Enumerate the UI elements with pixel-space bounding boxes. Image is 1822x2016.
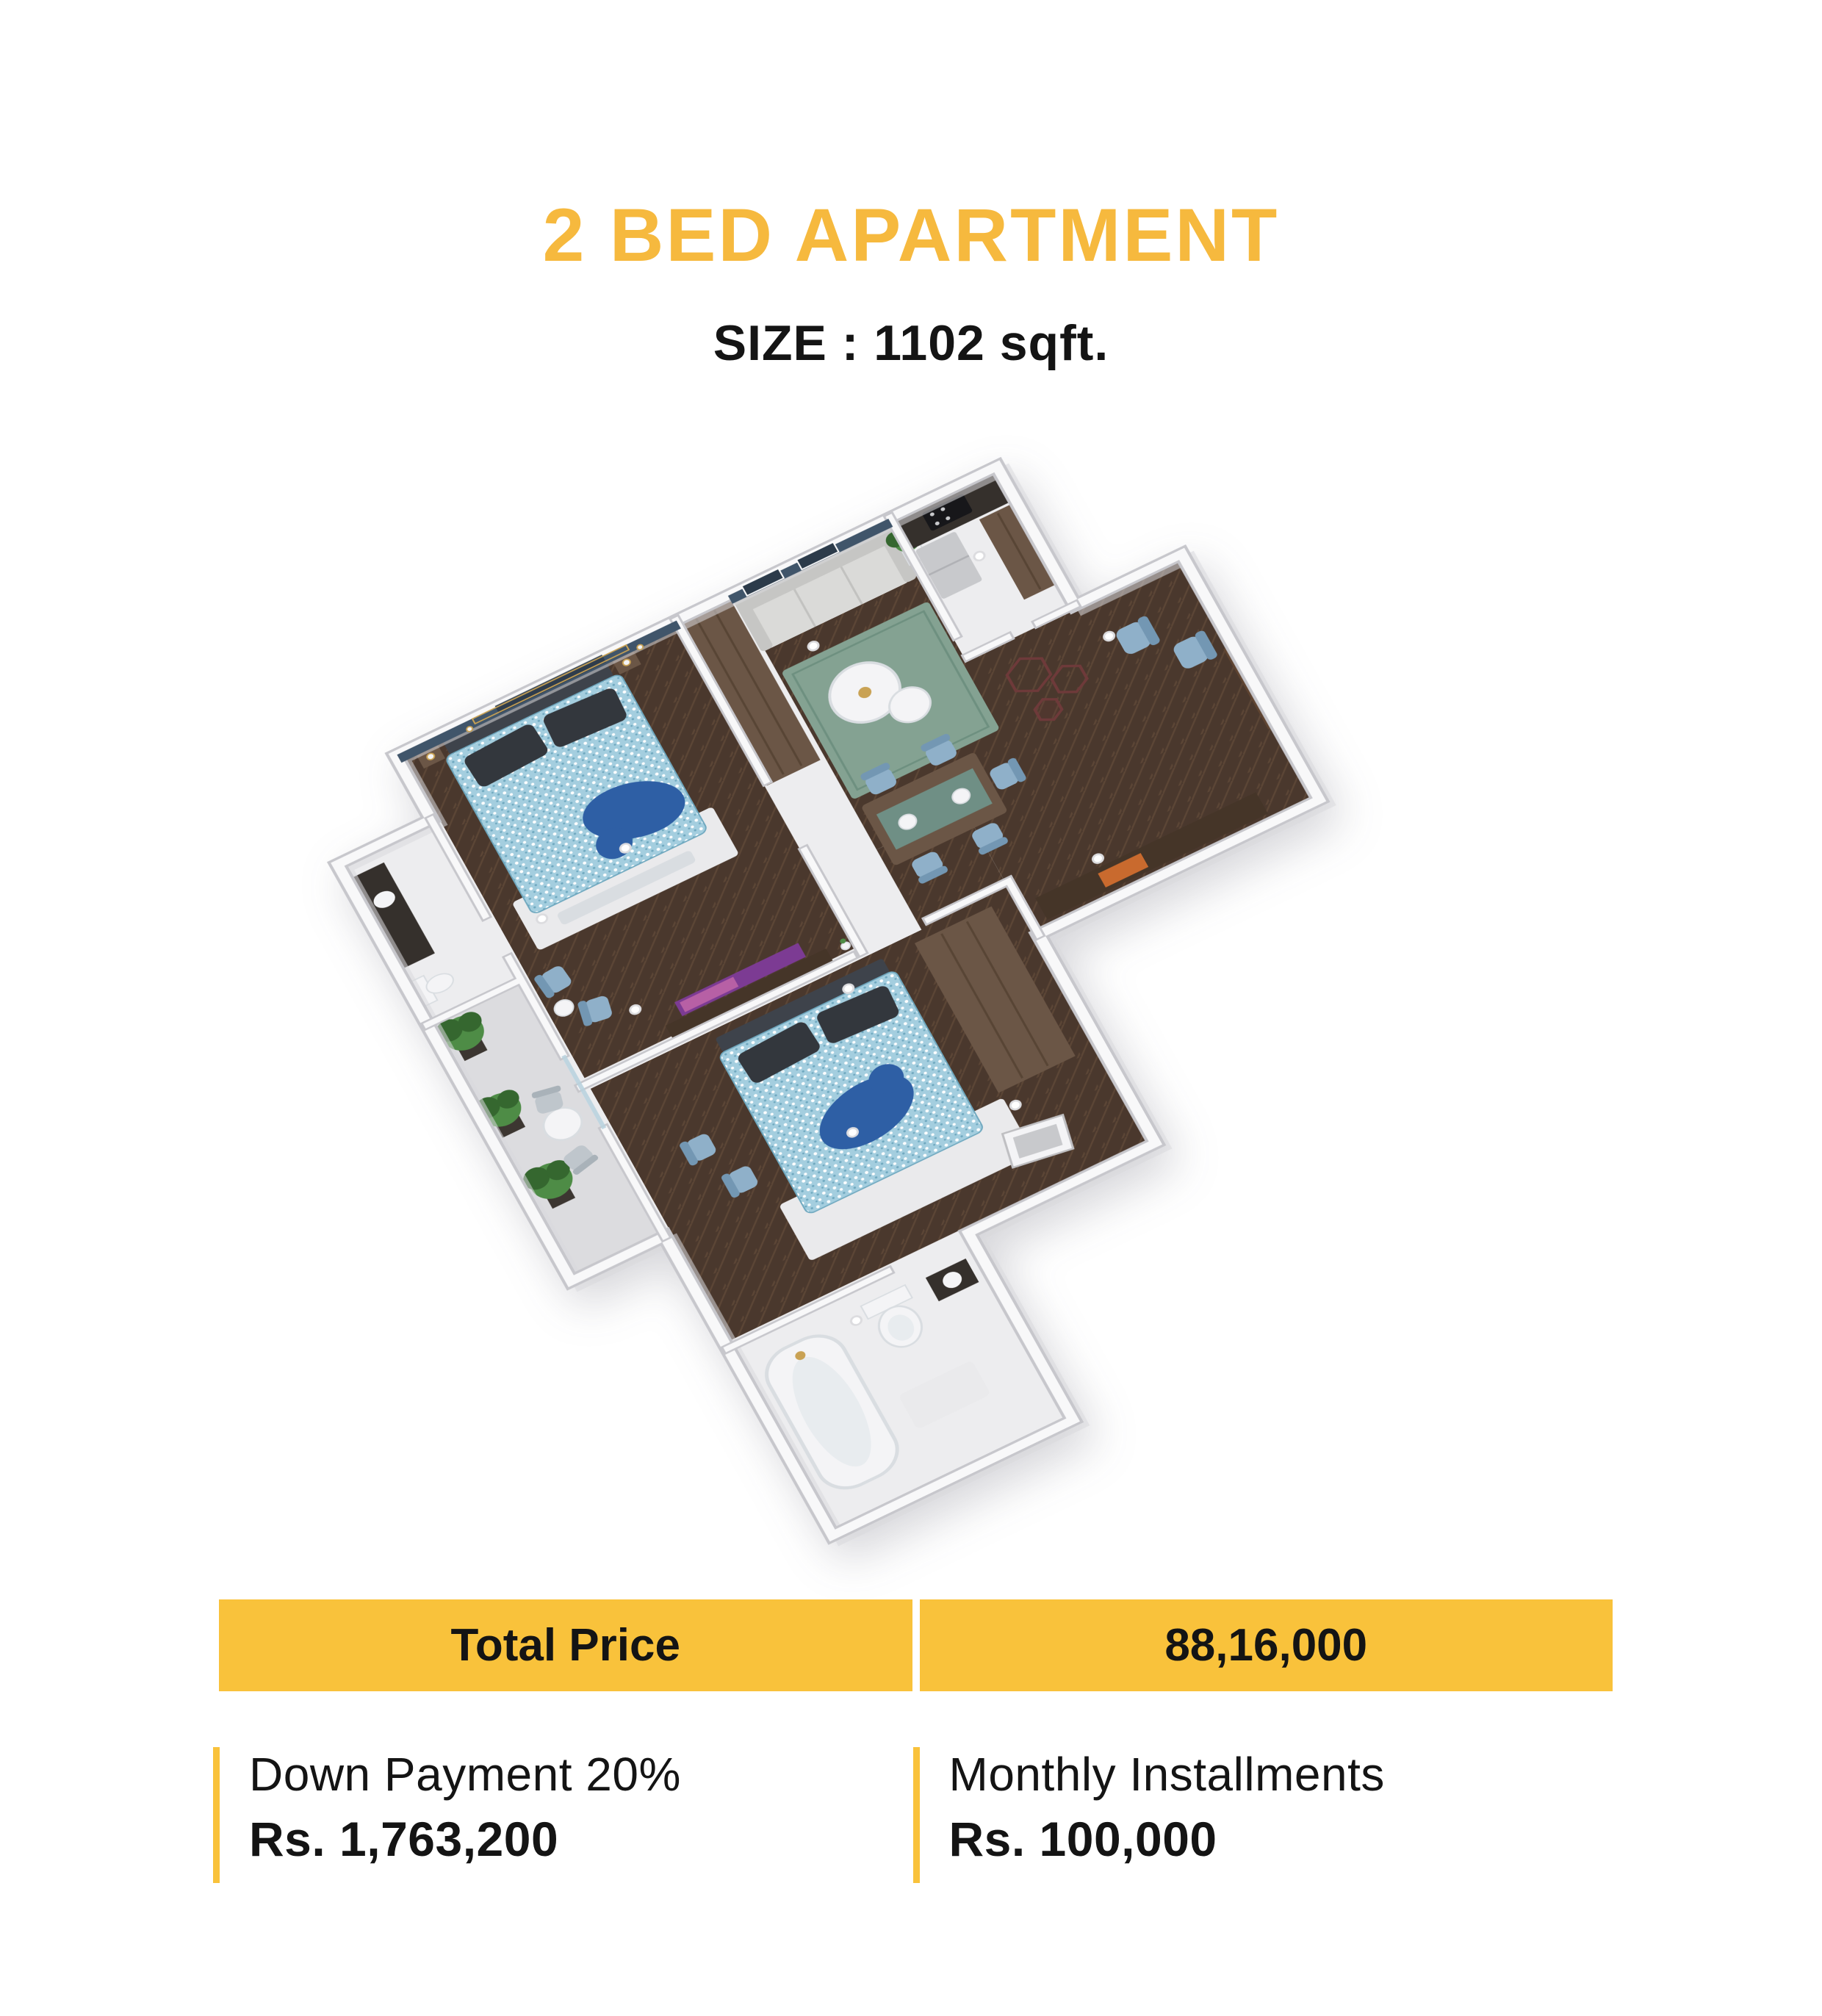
bed-throw-blanket (580, 773, 688, 847)
pillow (462, 722, 550, 789)
balcony-plant (523, 1156, 579, 1206)
planter-pot (494, 1112, 525, 1137)
ceiling-lights (468, 518, 1364, 1360)
master-bed-duvet (444, 673, 708, 915)
accent-bar (213, 1747, 220, 1883)
master-bed-headboard (442, 661, 613, 755)
master-bedroom (408, 600, 890, 1040)
balcony-plant (475, 1087, 527, 1133)
dining-chair (909, 849, 949, 885)
toilet-bowl (423, 970, 457, 997)
interior-wall (301, 467, 1329, 1394)
payment-terms: Down Payment 20% Rs. 1,763,200 Monthly I… (213, 1747, 1613, 1883)
planter-pot (544, 1183, 575, 1209)
sofa-seat (746, 544, 911, 650)
bedroom-chair (533, 963, 574, 999)
balcony-table (538, 1101, 588, 1146)
wall-sconce (466, 726, 474, 732)
dining-chair (969, 821, 1009, 856)
entry-hall-floor (899, 558, 1315, 934)
tv-console (666, 948, 833, 1038)
tv-screen (674, 943, 806, 1016)
size-subtitle: SIZE : 1102 sqft. (0, 314, 1822, 372)
total-price-value: 88,16,000 (1164, 1619, 1367, 1671)
faucet (793, 1350, 807, 1361)
kitchen (894, 469, 1059, 632)
media-console (1035, 792, 1268, 919)
fridge (915, 531, 982, 600)
down-payment-block: Down Payment 20% Rs. 1,763,200 (213, 1747, 913, 1883)
tall-cabinet (979, 503, 1059, 600)
table-runner (876, 768, 993, 850)
console-drawer (1098, 853, 1148, 888)
living-room-rug (781, 601, 1000, 800)
second-bed-duvet (719, 970, 985, 1215)
plate (949, 786, 973, 807)
monthly-installments-value: Rs. 100,000 (949, 1810, 1385, 1868)
accent-bar (913, 1747, 920, 1883)
master-bedroom-floor (405, 627, 855, 1078)
coffee-table (818, 652, 911, 734)
washbasin-counter (926, 1259, 979, 1301)
down-payment-value: Rs. 1,763,200 (249, 1810, 681, 1868)
balcony-plant (436, 1009, 491, 1057)
toilet-tank (410, 976, 437, 1007)
table-lamp (622, 658, 631, 667)
accent-chair (1113, 615, 1161, 658)
kitchen-counter (894, 469, 1013, 550)
outer-wall-edge (301, 415, 1541, 1580)
interior-wall-edge (301, 467, 1329, 1394)
bathroom (754, 1256, 1043, 1498)
outer-wall (301, 415, 1541, 1580)
corridor-floor (876, 808, 1034, 976)
dining-chair (920, 732, 960, 768)
pillow (815, 984, 901, 1045)
plate (896, 812, 920, 832)
wall-shadow (311, 419, 1550, 1584)
dining-chair (860, 762, 900, 797)
walls (301, 412, 1549, 1587)
window (741, 569, 783, 596)
second-bedroom-floor (591, 890, 1146, 1340)
wardrobe (677, 600, 821, 785)
floor-plan-area (0, 0, 1822, 2016)
bed-bench (556, 850, 696, 926)
bedroom-chair (577, 993, 613, 1027)
pillow (541, 686, 629, 749)
flower-vase (840, 940, 851, 951)
bedroom-chair (720, 1163, 760, 1198)
tv-unit (657, 924, 854, 1038)
nightstand (416, 744, 445, 768)
down-payment-label: Down Payment 20% (249, 1747, 681, 1803)
vanity-counter (352, 863, 435, 969)
wall-art-frame (472, 645, 629, 724)
floor-marble-base (301, 415, 1541, 1580)
master-bed-rug (512, 807, 740, 951)
leaning-art-frame (1002, 1115, 1073, 1167)
wall-art-panel (495, 655, 606, 713)
entry-hall (926, 575, 1315, 920)
bath-mat (899, 1360, 991, 1430)
attached-bathroom (352, 861, 459, 1007)
balcony (428, 990, 615, 1217)
living-room-floor (736, 525, 1031, 849)
dining-chair (987, 757, 1027, 792)
balcony-chair (560, 1142, 599, 1176)
sink (370, 888, 398, 911)
bathtub-basin (777, 1346, 887, 1477)
wall-decor (461, 542, 840, 732)
monthly-installments-block: Monthly Installments Rs. 100,000 (913, 1747, 1613, 1883)
total-price-label-cell: Total Price (219, 1599, 912, 1691)
page-title: 2 BED APARTMENT (0, 192, 1822, 278)
table-decor (856, 685, 874, 700)
bedroom-chair (678, 1131, 718, 1166)
nightstand (612, 650, 641, 674)
living-room (732, 514, 1078, 896)
monthly-installments-label: Monthly Installments (949, 1747, 1385, 1803)
wardrobe (915, 907, 1076, 1093)
rugs (467, 601, 1195, 1298)
side-table (551, 997, 576, 1019)
balcony-chair (531, 1085, 566, 1116)
window (796, 542, 838, 569)
sofa-back (738, 530, 892, 616)
hexagon-wall-art (1032, 694, 1065, 725)
total-price-row: Total Price 88,16,000 (219, 1599, 1613, 1691)
planter-pot (456, 1035, 487, 1061)
sofa-armrest (876, 525, 918, 583)
bathtub (756, 1326, 907, 1498)
second-bedroom (639, 906, 1115, 1297)
second-bed-rug (779, 1098, 1034, 1261)
entry-door (1223, 645, 1278, 730)
toilet-tank (861, 1285, 912, 1319)
balcony-glass-door (564, 1057, 603, 1127)
table-lamp (426, 752, 436, 761)
cooktop (921, 494, 973, 532)
wall-sconce (636, 644, 644, 650)
total-price-label: Total Price (451, 1619, 680, 1671)
hexagon-wall-art (1003, 650, 1056, 699)
accent-wall-blue (404, 525, 885, 757)
floor-plan-3d (301, 415, 1541, 1580)
second-bed-headboard (715, 958, 890, 1052)
toilet-bowl (871, 1300, 929, 1354)
total-price-value-cell: 88,16,000 (920, 1599, 1613, 1691)
bed-throw-blanket (804, 1060, 929, 1163)
balcony-floor (432, 983, 661, 1277)
floor-plan-illustration (301, 415, 1541, 1580)
sofa-armrest (732, 594, 774, 652)
hexagon-wall-art (1048, 660, 1091, 699)
dining-table (861, 752, 1008, 866)
pillow (735, 1020, 822, 1085)
coffee-table-small (883, 681, 937, 729)
houseplant (890, 525, 924, 556)
washbasin (940, 1269, 965, 1291)
accent-chair (1170, 630, 1218, 672)
plant-pot (901, 541, 927, 565)
floor-base (301, 415, 1541, 1580)
